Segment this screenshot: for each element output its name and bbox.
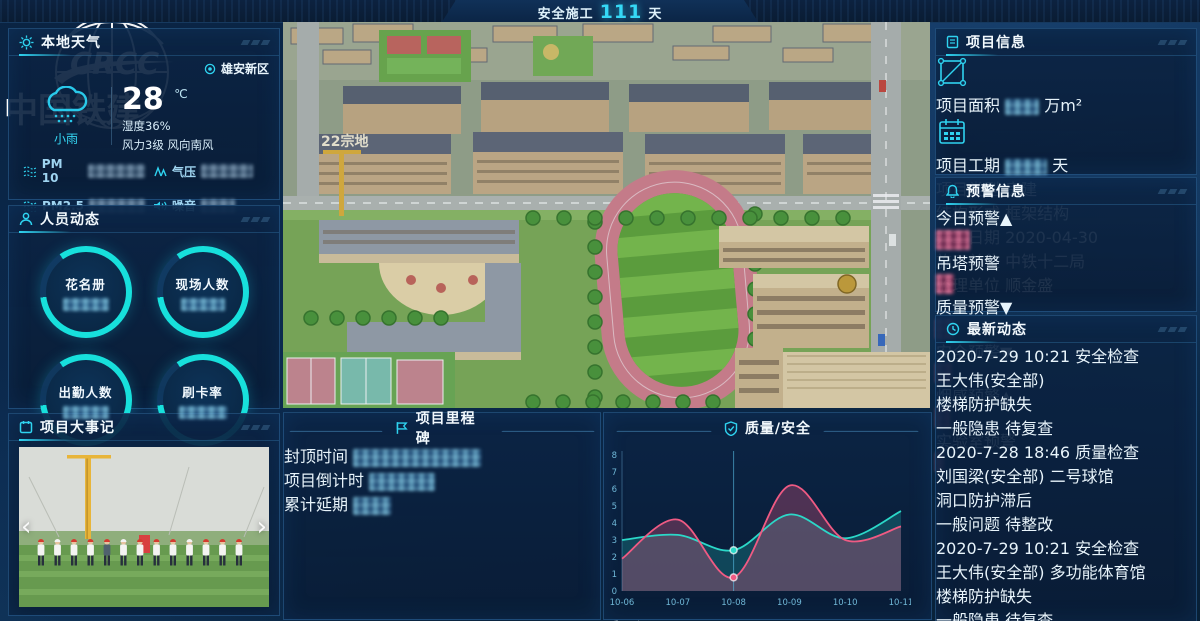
location-name: 多功能体育馆 <box>1050 563 1146 582</box>
update-time: 2020-7-29 10:21 <box>936 347 1070 366</box>
area-unit: 万m² <box>1044 96 1082 115</box>
title-decoration <box>1159 40 1186 45</box>
personnel-panel: 人员动态 花名册 现场人数 出勤人数 刷卡率 <box>8 205 280 409</box>
shield-check-icon <box>724 421 738 436</box>
mist-icon <box>23 165 37 177</box>
project-stats: 项目面积 万m² 项目工期 天 <box>936 56 1196 176</box>
update-item[interactable]: 2020-7-29 10:21 安全检查 王大伟(安全部) 多功能体育馆 楼梯防… <box>936 535 1196 621</box>
crane-warning-value-redacted <box>936 274 954 294</box>
warnings-title: 预警信息 <box>966 181 1026 201</box>
aerial-render: 22宗地 <box>283 22 930 408</box>
updates-panel: 最新动态 2020-7-29 10:21 安全检查 王大伟(安全部) 楼梯防护缺… <box>935 315 1197 621</box>
pressure-value-redacted <box>201 164 253 178</box>
pressure-label: 气压 <box>172 163 196 180</box>
title-decoration <box>242 217 269 222</box>
svg-text:2: 2 <box>612 553 617 563</box>
today-warning: 今日预警▲ <box>936 205 1196 250</box>
personnel-title: 人员动态 <box>40 209 100 229</box>
flag-icon <box>395 421 409 435</box>
inspector-name: 王大伟(安全部) <box>936 371 1045 390</box>
svg-text:3: 3 <box>612 536 617 546</box>
svg-text:4: 4 <box>612 519 617 529</box>
roster-value-redacted <box>63 298 109 311</box>
safety-days-unit: 天 <box>648 3 662 22</box>
quality-safety-panel: 质量/安全 01234567810-0610-0710-0810-0910-10… <box>603 412 932 620</box>
update-item[interactable]: 2020-7-28 18:46 质量检查 刘国梁(安全部) 二号球馆 洞口防护滞… <box>936 439 1196 535</box>
swipe-rate-value-redacted <box>179 406 227 419</box>
svg-text:10-07: 10-07 <box>665 598 690 608</box>
calendar-book-icon <box>19 420 33 434</box>
calendar-icon <box>936 116 968 148</box>
today-warning-value-redacted <box>936 230 970 250</box>
onsite-label: 现场人数 <box>175 274 229 293</box>
hazard-tag: 一般隐患 <box>936 419 1000 438</box>
update-type-badge: 安全检查 <box>1075 347 1139 366</box>
weather-condition: 小雨 <box>23 86 109 147</box>
update-time: 2020-7-28 18:46 <box>936 443 1070 462</box>
duration-label: 项目工期 <box>936 156 1000 175</box>
condition-label: 小雨 <box>23 130 109 147</box>
svg-text:10-10: 10-10 <box>833 598 858 608</box>
delay-value-redacted <box>353 497 391 515</box>
attendance-label: 出勤人数 <box>58 382 112 401</box>
dashboard: 安全施工 111 天 <box>0 0 1200 621</box>
countdown: 项目倒计时 <box>284 467 600 491</box>
onsite-ring: 现场人数 <box>157 246 249 338</box>
roster-ring: 花名册 <box>40 246 132 338</box>
topping-time-label: 封顶时间 <box>284 447 348 466</box>
area-stat: 项目面积 万m² <box>936 56 1196 116</box>
divider <box>111 87 112 145</box>
issue-text: 楼梯防护缺失 <box>936 391 1196 415</box>
pm10-value-redacted <box>88 164 145 178</box>
svg-text:10-09: 10-09 <box>777 598 802 608</box>
warnings-panel: 预警信息 今日预警▲ 吊塔预警 质量预警▼ 安全预警▼ 烟感预警▲ 实验室预警 <box>935 177 1197 312</box>
clock-icon <box>946 322 960 336</box>
pressure-metric: 气压 <box>153 157 267 185</box>
svg-text:7: 7 <box>612 468 617 478</box>
title-decoration <box>1159 327 1186 332</box>
milestone-title: 项目里程碑 <box>416 408 489 448</box>
quality-safety-chart[interactable]: 01234567810-0610-0710-0810-0910-1010-11 <box>604 443 931 615</box>
milestone-rows: 封顶时间 项目倒计时 累计延期 <box>284 443 600 515</box>
countdown-label: 项目倒计时 <box>284 471 364 490</box>
area-label: 项目面积 <box>936 96 1000 115</box>
inspector-name: 王大伟(安全部) <box>936 563 1045 582</box>
weather-readings: 28 ℃ 湿度36% 风力3级 风向南风 <box>122 79 213 153</box>
safety-days-value: 111 <box>600 1 643 23</box>
updates-title: 最新动态 <box>967 319 1027 339</box>
document-icon <box>946 35 959 49</box>
chart-title: 质量/安全 <box>745 418 811 438</box>
weather-main: 小雨 28 ℃ 湿度36% 风力3级 风向南风 <box>23 79 265 153</box>
pm10-metric: PM 10 <box>23 157 145 185</box>
svg-text:10-08: 10-08 <box>721 598 746 608</box>
issue-text: 洞口防护滞后 <box>936 487 1196 511</box>
svg-text:10-11: 10-11 <box>889 598 911 608</box>
wind: 风力3级 风向南风 <box>122 137 213 153</box>
svg-text:6: 6 <box>612 485 617 495</box>
svg-text:1: 1 <box>612 570 617 580</box>
update-time: 2020-7-29 10:21 <box>936 539 1070 558</box>
svg-text:5: 5 <box>612 502 617 512</box>
temperature-value: 28 <box>122 82 164 117</box>
svg-text:8: 8 <box>612 451 617 461</box>
duration-value-redacted <box>1005 159 1047 175</box>
project-info-panel: 项目信息 项目面积 万m² <box>935 28 1197 175</box>
milestone-panel: 项目里程碑 封顶时间 项目倒计时 累计延期 <box>283 412 601 620</box>
delay-label: 累计延期 <box>284 495 348 514</box>
event-photo: ‹ › <box>19 447 269 607</box>
photo-next-arrow[interactable]: › <box>257 514 267 540</box>
location-name: 二号球馆 <box>1050 467 1114 486</box>
person-icon <box>19 212 33 226</box>
inspector-name: 刘国梁(安全部) <box>936 467 1045 486</box>
weather-title: 本地天气 <box>41 32 101 52</box>
site-3d-view[interactable]: 22宗地 宣传片 效果图 全景图 <box>283 22 930 408</box>
update-type-badge: 安全检查 <box>1075 539 1139 558</box>
rain-cloud-icon <box>40 86 92 124</box>
humidity: 湿度36% <box>122 118 213 134</box>
hazard-tag: 一般问题 <box>936 515 1000 534</box>
status-tag: 待整改 <box>1005 515 1053 534</box>
duration-stat: 项目工期 天 <box>936 116 1196 176</box>
tooltip-quality-row: 质量问题 <box>604 615 931 621</box>
location-label: 雄安新区 <box>221 60 269 77</box>
trend-up-icon: ▲ <box>1000 209 1012 228</box>
status-tag: 待复查 <box>1005 611 1053 621</box>
pressure-gauge-icon <box>153 165 167 177</box>
photo-prev-arrow[interactable]: ‹ <box>21 514 31 540</box>
topping-time-value-redacted <box>353 449 481 467</box>
temperature-unit: ℃ <box>174 87 187 101</box>
countdown-value-redacted <box>369 473 435 491</box>
chart-tooltip: 质量问题 安全问题 <box>604 615 931 621</box>
safety-days-label: 安全施工 <box>538 3 594 22</box>
area-value-redacted <box>1005 99 1039 115</box>
location-chip[interactable]: 雄安新区 <box>204 60 269 77</box>
sun-gear-icon <box>19 35 34 50</box>
roster-label: 花名册 <box>65 274 106 293</box>
update-item[interactable]: 2020-7-29 10:21 安全检查 王大伟(安全部) 楼梯防护缺失 一般隐… <box>936 343 1196 439</box>
title-decoration <box>1159 189 1186 194</box>
hazard-tag: 一般隐患 <box>936 611 1000 621</box>
crane-warning: 吊塔预警 <box>936 250 1196 295</box>
title-decoration <box>242 40 269 45</box>
area-icon <box>936 56 968 88</box>
swipe-rate-label: 刷卡率 <box>182 382 223 401</box>
location-icon <box>204 63 216 75</box>
duration-unit: 天 <box>1052 156 1068 175</box>
status-tag: 待复查 <box>1005 419 1053 438</box>
attendance-ring: 出勤人数 <box>40 354 132 446</box>
onsite-value-redacted <box>181 298 225 311</box>
svg-text:0: 0 <box>612 587 617 597</box>
groundbreaking-photo <box>19 447 269 607</box>
update-type-badge: 质量检查 <box>1075 443 1139 462</box>
pm10-label: PM 10 <box>42 157 83 185</box>
swipe-rate-ring: 刷卡率 <box>157 354 249 446</box>
project-info-title: 项目信息 <box>966 32 1026 52</box>
issue-text: 楼梯防护缺失 <box>936 583 1196 607</box>
attendance-value-redacted <box>63 406 109 419</box>
weather-panel: 本地天气 雄安新区 小雨 28 ℃ 湿度36% <box>8 28 280 200</box>
bell-icon <box>946 184 959 198</box>
delay: 累计延期 <box>284 491 600 515</box>
svg-text:10-06: 10-06 <box>610 598 635 608</box>
